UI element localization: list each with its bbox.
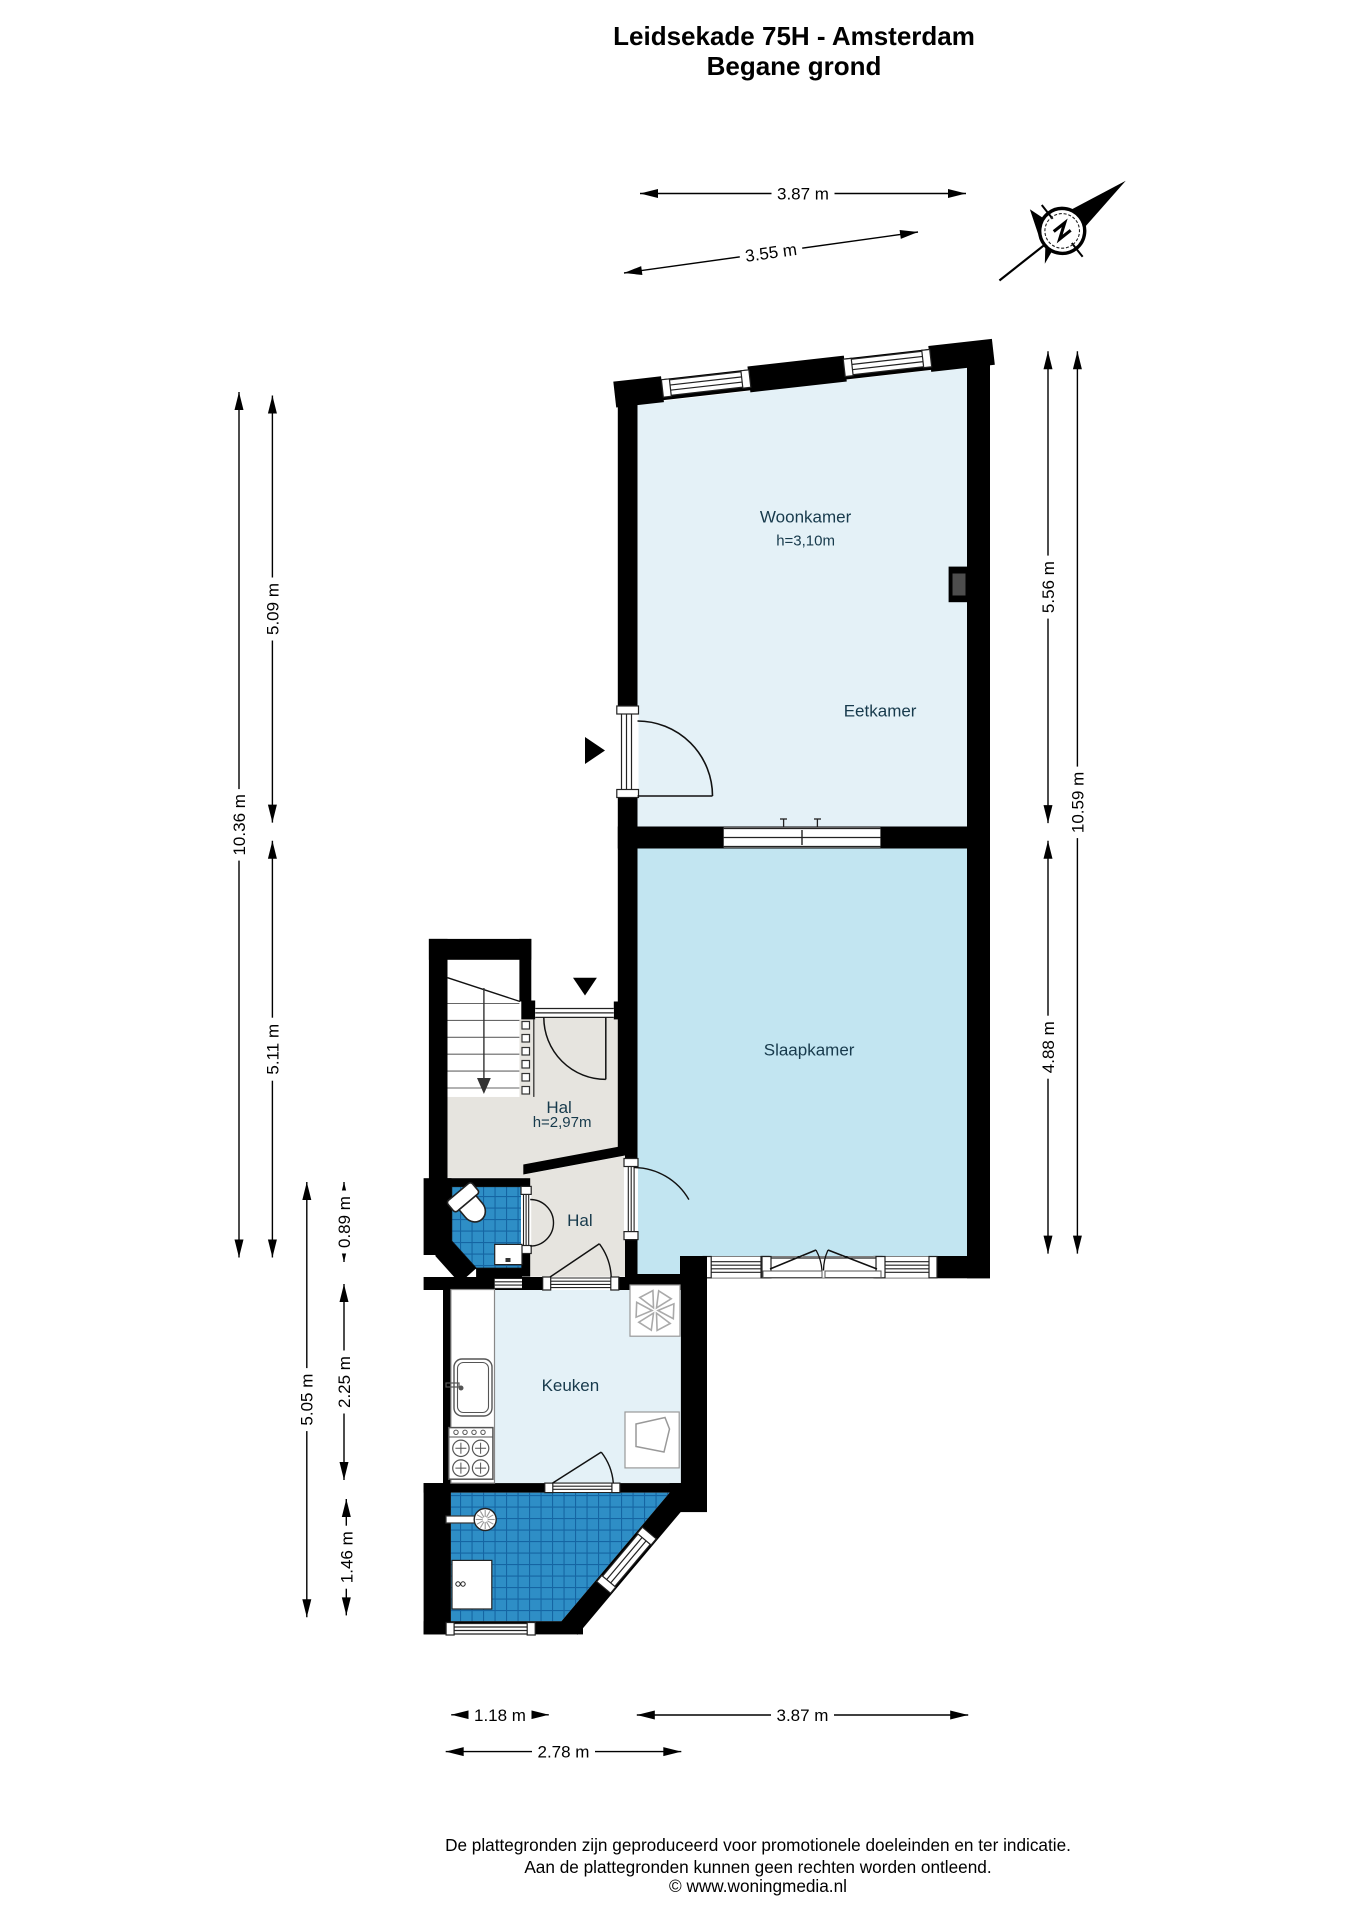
svg-text:Keuken: Keuken (542, 1376, 600, 1395)
svg-text:h=3,10m: h=3,10m (776, 533, 835, 550)
svg-text:Slaapkamer: Slaapkamer (764, 1041, 855, 1060)
svg-text:1.18 m: 1.18 m (474, 1706, 526, 1725)
svg-text:10.36 m: 10.36 m (230, 794, 249, 855)
svg-text:5.05 m: 5.05 m (298, 1374, 317, 1426)
svg-text:5.09 m: 5.09 m (263, 583, 282, 635)
svg-text:2.25 m: 2.25 m (335, 1356, 354, 1408)
svg-text:2.78 m: 2.78 m (538, 1743, 590, 1762)
svg-text:© www.woningmedia.nl: © www.woningmedia.nl (669, 1876, 847, 1896)
svg-text:Leidsekade 75H - Amsterdam: Leidsekade 75H - Amsterdam (613, 21, 975, 51)
svg-text:5.11 m: 5.11 m (263, 1024, 282, 1075)
svg-text:Aan de plattegronden kunnen ge: Aan de plattegronden kunnen geen rechten… (524, 1857, 991, 1877)
svg-text:4.88 m: 4.88 m (1039, 1021, 1058, 1073)
svg-text:De plattegronden zijn geproduc: De plattegronden zijn geproduceerd voor … (445, 1835, 1071, 1855)
svg-text:10.59 m: 10.59 m (1068, 772, 1087, 833)
svg-text:h=2,97m: h=2,97m (533, 1114, 592, 1131)
svg-text:Eetkamer: Eetkamer (844, 702, 917, 721)
svg-text:0.89 m: 0.89 m (335, 1196, 354, 1248)
svg-text:Begane grond: Begane grond (707, 51, 882, 81)
svg-text:3.87 m: 3.87 m (777, 184, 829, 203)
svg-text:5.56 m: 5.56 m (1039, 561, 1058, 613)
svg-text:3.87 m: 3.87 m (777, 1706, 829, 1725)
svg-text:Hal: Hal (567, 1211, 593, 1230)
svg-text:1.46 m: 1.46 m (337, 1531, 356, 1583)
svg-text:Woonkamer: Woonkamer (760, 508, 852, 527)
